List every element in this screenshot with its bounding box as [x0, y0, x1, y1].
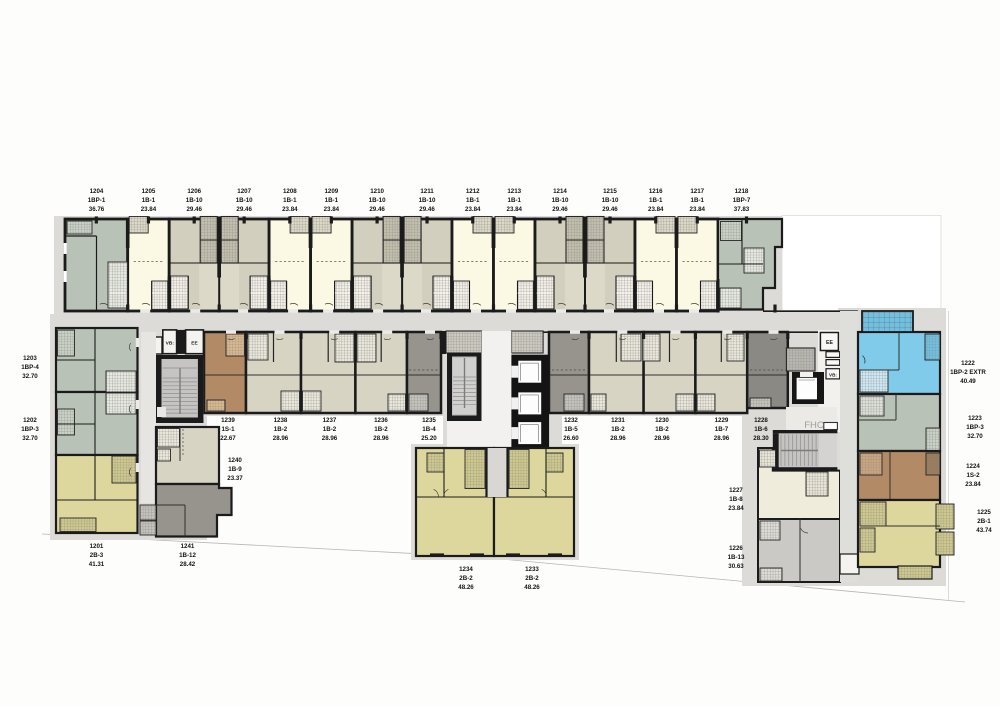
- svg-text:VB:: VB:: [166, 341, 175, 347]
- svg-text:12091B-123.84: 12091B-123.84: [324, 188, 340, 213]
- svg-text:EE: EE: [191, 341, 198, 347]
- svg-text:12252B-143.74: 12252B-143.74: [976, 509, 992, 534]
- svg-text:12171B-123.84: 12171B-123.84: [690, 188, 706, 213]
- svg-text:VB:: VB:: [829, 373, 837, 378]
- svg-text:12121B-123.84: 12121B-123.84: [465, 188, 481, 213]
- svg-text:12351B-425.20: 12351B-425.20: [421, 417, 437, 442]
- svg-text:12381B-228.96: 12381B-228.96: [273, 417, 289, 442]
- svg-text:12311B-228.96: 12311B-228.96: [610, 417, 626, 442]
- svg-text:12391S-122.67: 12391S-122.67: [220, 417, 236, 442]
- svg-text:12111B-1029.46: 12111B-1029.46: [419, 188, 436, 213]
- svg-text:12031BP-432.70: 12031BP-432.70: [21, 355, 39, 380]
- svg-text:12301B-228.96: 12301B-228.96: [654, 417, 670, 442]
- svg-text:12231BP-332.70: 12231BP-332.70: [966, 415, 984, 440]
- svg-text:12281B-628.30: 12281B-628.30: [753, 417, 769, 442]
- svg-text:12151B-1029.46: 12151B-1029.46: [602, 188, 619, 213]
- svg-text:12131B-123.84: 12131B-123.84: [507, 188, 523, 213]
- svg-text:12012B-341.31: 12012B-341.31: [89, 543, 105, 568]
- svg-text:12342B-248.26: 12342B-248.26: [458, 566, 474, 591]
- svg-text:12081B-123.84: 12081B-123.84: [282, 188, 298, 213]
- svg-text:12181BP-737.83: 12181BP-737.83: [733, 188, 751, 213]
- svg-text:12041BP-136.76: 12041BP-136.76: [88, 188, 106, 213]
- svg-text:12332B-248.26: 12332B-248.26: [524, 566, 540, 591]
- svg-text:12261B-1330.63: 12261B-1330.63: [728, 545, 745, 570]
- svg-text:12291B-728.96: 12291B-728.96: [714, 417, 730, 442]
- svg-text:12141B-1029.46: 12141B-1029.46: [552, 188, 569, 213]
- svg-text:12071B-1029.46: 12071B-1029.46: [236, 188, 253, 213]
- svg-text:12051B-123.84: 12051B-123.84: [141, 188, 157, 213]
- svg-text:12161B-123.84: 12161B-123.84: [648, 188, 664, 213]
- svg-text:EE: EE: [826, 340, 833, 346]
- svg-text:12321B-526.60: 12321B-526.60: [563, 417, 579, 442]
- svg-text:12401B-923.37: 12401B-923.37: [227, 457, 243, 482]
- svg-text:12371B-228.96: 12371B-228.96: [322, 417, 338, 442]
- svg-text:FHC: FHC: [804, 420, 824, 431]
- svg-text:12271B-823.84: 12271B-823.84: [728, 487, 744, 512]
- svg-text:12021BP-332.70: 12021BP-332.70: [21, 417, 39, 442]
- svg-text:12101B-1029.46: 12101B-1029.46: [369, 188, 386, 213]
- svg-text:12241S-223.84: 12241S-223.84: [965, 463, 981, 488]
- svg-text:12411B-1228.42: 12411B-1228.42: [179, 543, 196, 568]
- svg-text:12361B-228.96: 12361B-228.96: [373, 417, 389, 442]
- svg-text:12061B-1029.46: 12061B-1029.46: [186, 188, 203, 213]
